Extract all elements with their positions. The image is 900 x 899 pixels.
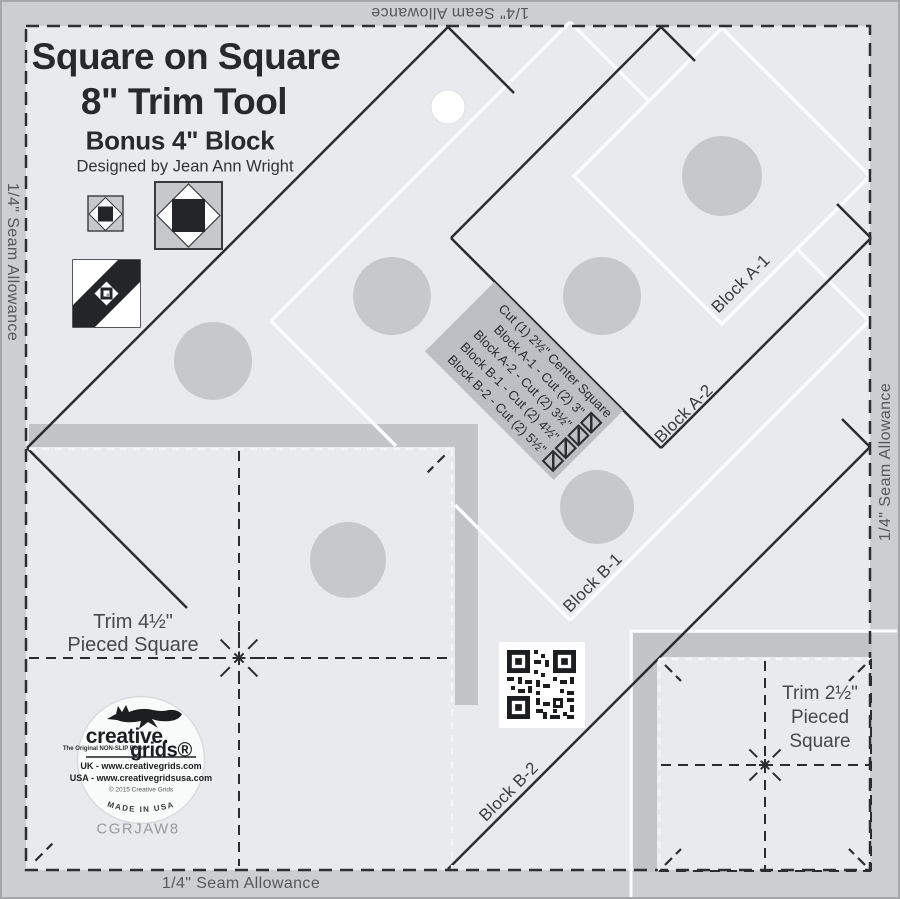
- grip-dot: [563, 257, 641, 335]
- seam-allowance-label-bottom: 1/4" Seam Allowance: [162, 875, 320, 893]
- logo-copyright: © 2015 Creative Grids: [109, 787, 173, 794]
- square-on-square-block-icon-large: [155, 182, 222, 249]
- trim-small-caption-line2: Pieced: [782, 706, 858, 730]
- logo-tagline: The Original NON-SLIP Ruler: [63, 746, 145, 752]
- seam-allowance-label-top: 1/4" Seam Allowance: [371, 3, 529, 21]
- trim-small-caption: Trim 2½" Pieced Square: [782, 682, 858, 754]
- grip-dot: [174, 322, 252, 400]
- seam-band-bottom: [0, 870, 900, 899]
- grip-dot: [560, 470, 634, 544]
- page-title-line3: Bonus 4" Block: [86, 126, 275, 157]
- designer-byline: Designed by Jean Ann Wright: [76, 158, 293, 177]
- center-mark-large: [213, 632, 265, 684]
- trim-small-caption-line3: Square: [782, 730, 858, 754]
- product-code: CGRJAW8: [96, 821, 179, 838]
- seam-allowance-label-right: 1/4" Seam Allowance: [877, 383, 895, 541]
- snails-trail-block-icon: [73, 260, 140, 327]
- grip-dot: [310, 522, 386, 598]
- trim-large-caption-line1: Trim 4½": [67, 611, 198, 634]
- hanging-hole-icon: [431, 90, 465, 124]
- page-title-line1: Square on Square: [32, 36, 341, 78]
- trim-large-caption-line2: Pieced Square: [67, 634, 198, 657]
- quilting-ruler: MADE IN USA Square on Square 8" Trim Too…: [0, 0, 900, 899]
- seam-band-left: [0, 0, 26, 899]
- logo-uk-url: UK - www.creativegrids.com: [80, 761, 201, 771]
- page-title-line2: 8" Trim Tool: [81, 81, 287, 123]
- seam-allowance-label-left: 1/4" Seam Allowance: [3, 183, 21, 341]
- qr-code: [499, 642, 585, 728]
- logo-usa-url: USA - www.creativegridsusa.com: [70, 773, 212, 783]
- grip-dot: [682, 136, 762, 216]
- trim-small-caption-line1: Trim 2½": [782, 682, 858, 706]
- square-on-square-block-icon-small: [88, 196, 123, 231]
- grip-dot: [353, 257, 431, 335]
- trim-large-caption: Trim 4½" Pieced Square: [67, 611, 198, 657]
